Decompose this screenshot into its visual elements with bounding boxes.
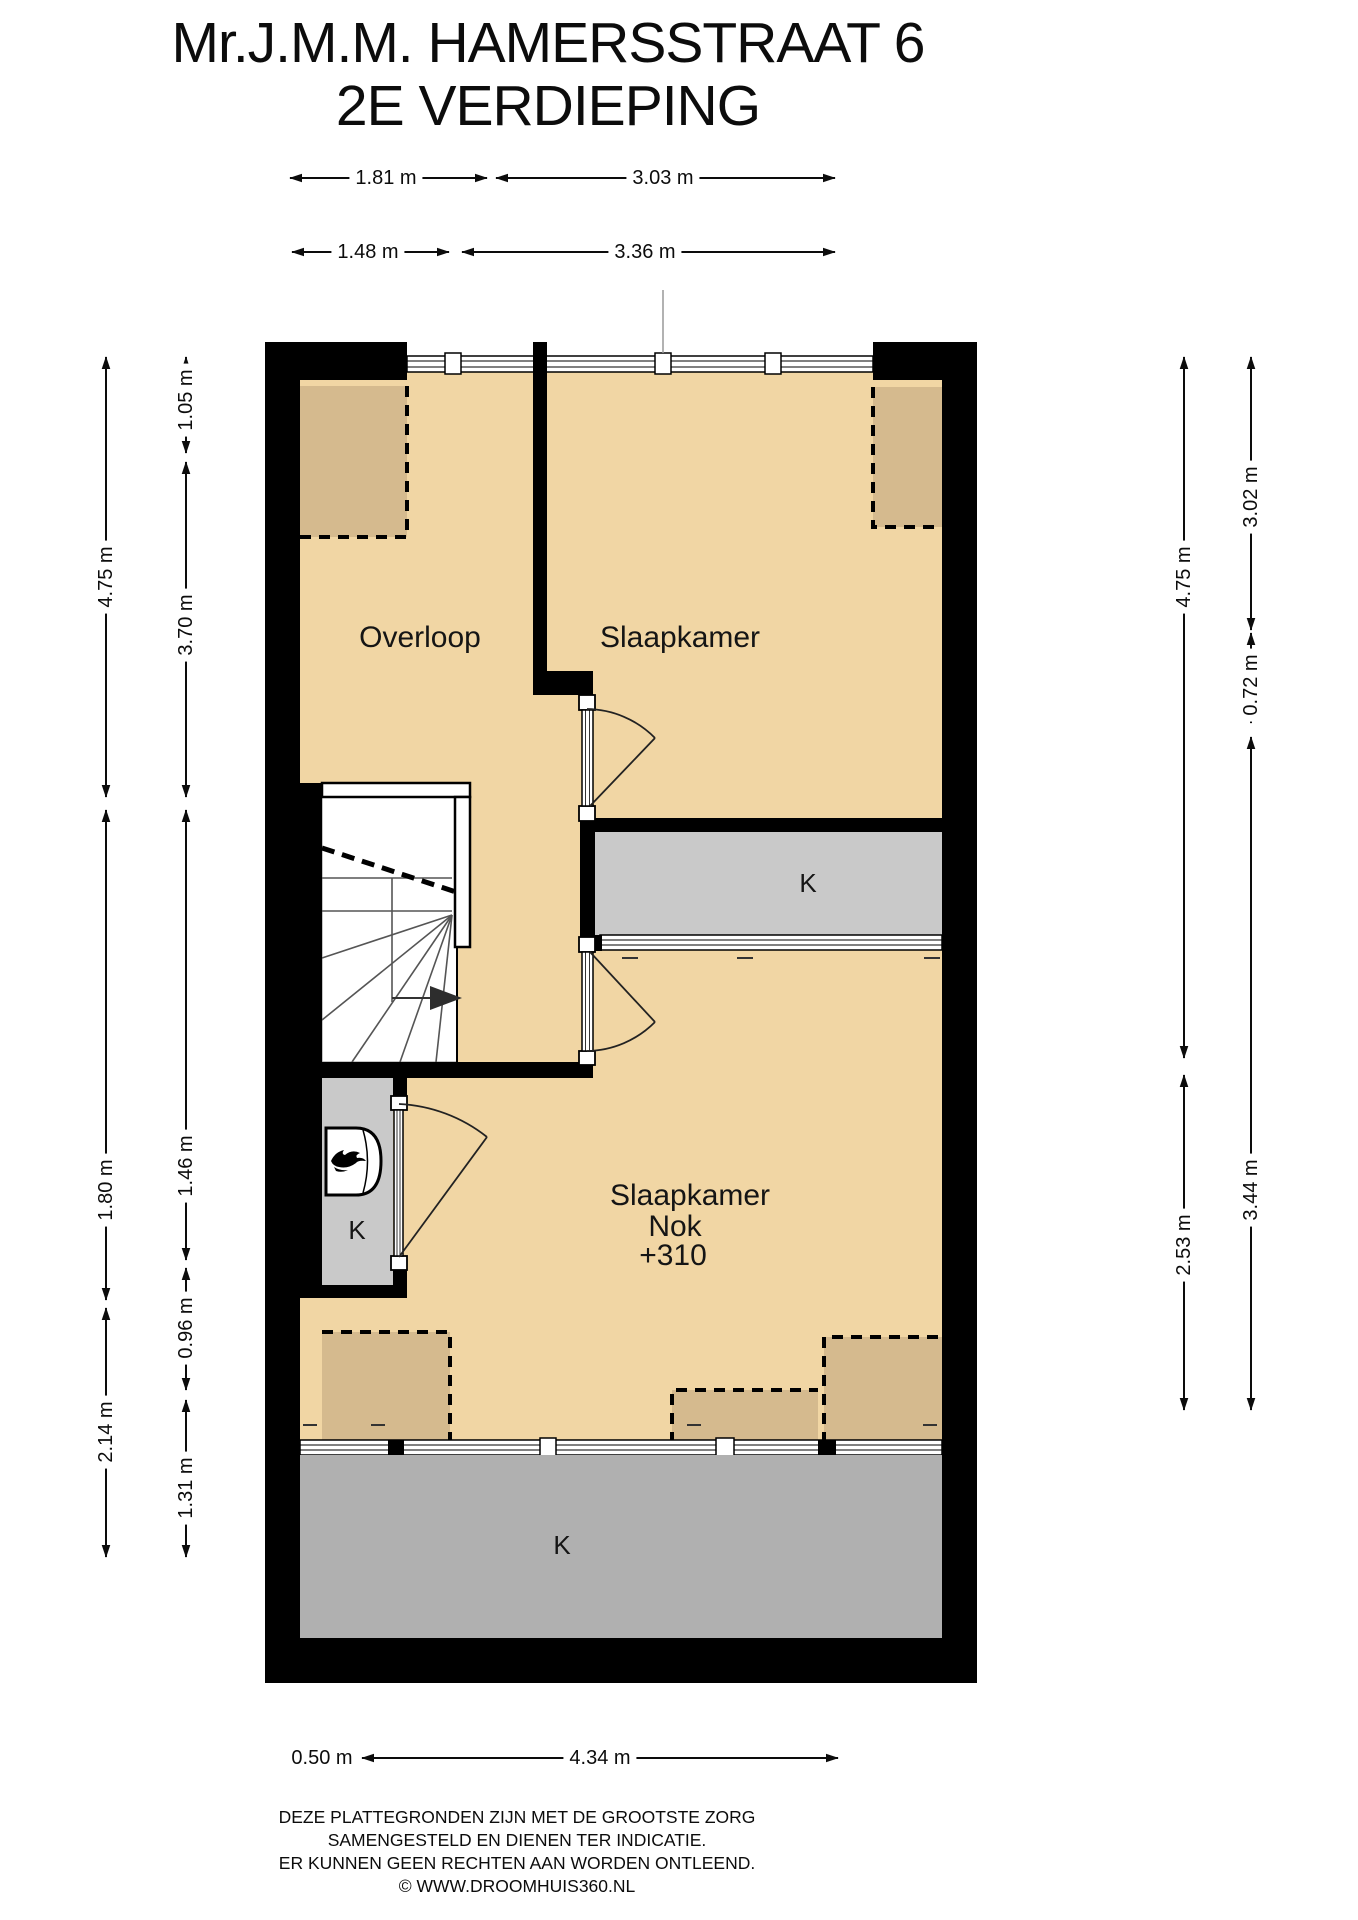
disclaimer-line: ER KUNNEN GEEN RECHTEN AAN WORDEN ONTLEE… (279, 1852, 756, 1875)
room-k-bottom (300, 1455, 942, 1638)
dim-top: 3.03 m (626, 166, 699, 190)
floorplan-page: Mr.J.M.M. HAMERSSTRAAT 6 2E VERDIEPING 1… (0, 0, 1358, 1920)
dim-right: 3.02 m (1239, 460, 1263, 533)
disclaimer: DEZE PLATTEGRONDEN ZIJN MET DE GROOTSTE … (279, 1806, 756, 1898)
page-title: Mr.J.M.M. HAMERSSTRAAT 6 2E VERDIEPING (172, 12, 925, 138)
dim-bottom: 0.50 m (285, 1746, 358, 1770)
copyright-line: © WWW.DROOMHUIS360.NL (279, 1875, 756, 1898)
title-floor: 2E VERDIEPING (172, 75, 925, 138)
disclaimer-line: DEZE PLATTEGRONDEN ZIJN MET DE GROOTSTE … (279, 1806, 756, 1829)
room-k-mid (595, 832, 942, 935)
disclaimer-line: SAMENGESTELD EN DIENEN TER INDICATIE. (279, 1829, 756, 1852)
title-address: Mr.J.M.M. HAMERSSTRAAT 6 (172, 12, 925, 75)
top-windows (407, 290, 873, 374)
dim-left: 1.05 m (174, 363, 198, 436)
window-mullion (445, 353, 461, 374)
room-slaapkamer-bottom (300, 950, 942, 1440)
wall-k-top (585, 818, 942, 832)
dim-left: 1.31 m (174, 1451, 198, 1524)
dim-left: 1.80 m (94, 1153, 118, 1226)
dim-bottom: 4.34 m (563, 1746, 636, 1770)
dim-top: 1.48 m (331, 240, 404, 264)
room-k-small (322, 1078, 393, 1285)
dim-top: 3.36 m (608, 240, 681, 264)
dim-right: 2.53 m (1172, 1208, 1196, 1281)
dim-top: 1.81 m (349, 166, 422, 190)
window-mullion (765, 353, 781, 374)
dim-left: 1.46 m (174, 1129, 198, 1202)
window-mullion (655, 353, 671, 374)
dim-left: 3.70 m (174, 588, 198, 661)
wall-overloop-divider (533, 342, 547, 683)
room-slaapkamer-top (547, 374, 942, 818)
dim-right: 4.75 m (1172, 540, 1196, 613)
dim-right: 3.44 m (1239, 1153, 1263, 1226)
dim-left: 0.96 m (174, 1291, 198, 1364)
dim-left: 4.75 m (94, 540, 118, 613)
room-overloop (300, 374, 533, 783)
dim-right: 0.72 m (1239, 648, 1263, 721)
dim-left: 2.14 m (94, 1395, 118, 1468)
